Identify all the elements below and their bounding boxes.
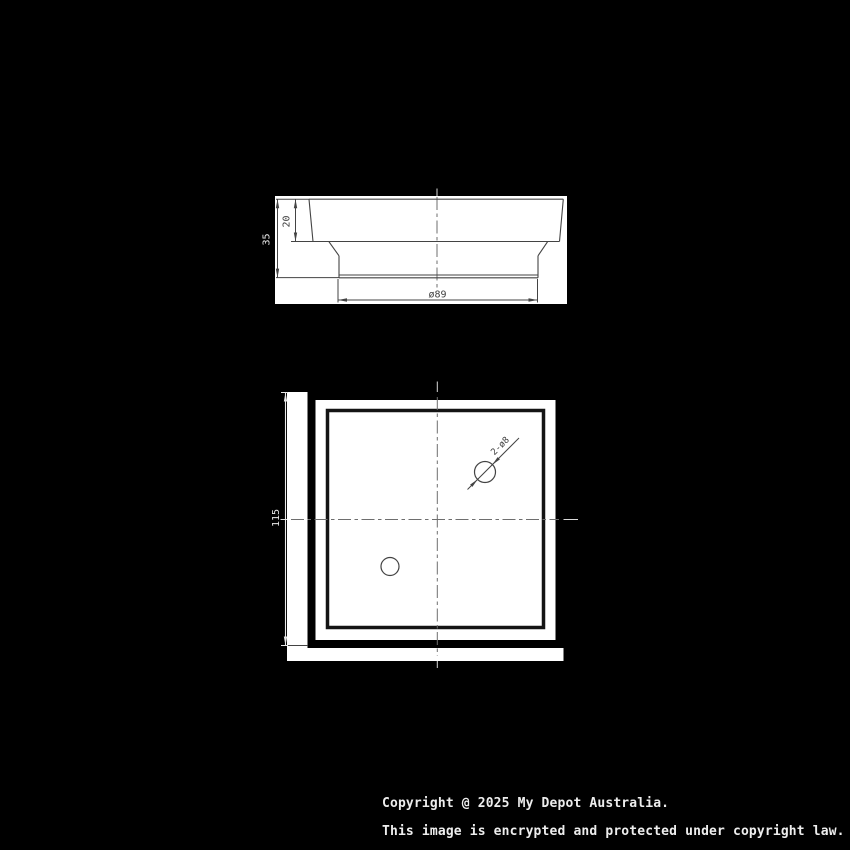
- arrow-down: [284, 637, 287, 646]
- dim-label-flange-height: 20: [282, 215, 293, 227]
- dim-label-overall-width: 115: [271, 509, 282, 527]
- copyright-line: Copyright @ 2025 My Depot Australia.: [382, 796, 669, 811]
- protection-notice-line: This image is encrypted and protected un…: [382, 824, 845, 839]
- dim-label-base-diameter: ø89: [428, 290, 446, 301]
- technical-drawing-canvas: 35 20 ø89: [0, 0, 850, 850]
- side-view-paper-patch: [275, 196, 567, 304]
- arrow-up: [284, 393, 287, 402]
- dim-label-overall-height: 35: [262, 233, 273, 245]
- drawing-svg: 35 20 ø89: [0, 0, 850, 850]
